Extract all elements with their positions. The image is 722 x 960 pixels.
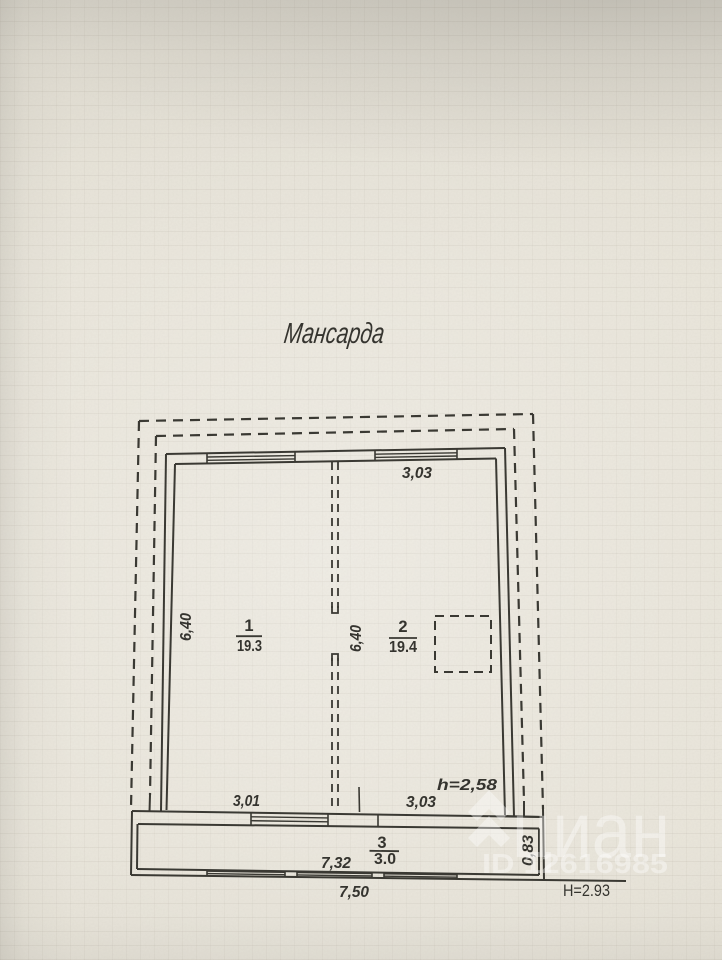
svg-text:H=2.93: H=2.93 [563,881,610,900]
svg-text:Мансарда: Мансарда [282,318,386,350]
svg-text:2: 2 [398,618,407,636]
svg-text:7,50: 7,50 [339,884,369,901]
svg-text:1: 1 [244,617,253,635]
svg-text:ID 12616985: ID 12616985 [482,848,668,879]
svg-text:19.4: 19.4 [389,639,417,656]
svg-text:6,40: 6,40 [178,613,195,641]
svg-text:3.0: 3.0 [374,851,396,868]
svg-text:3: 3 [377,834,386,852]
svg-text:7,32: 7,32 [321,855,351,872]
svg-text:6,40: 6,40 [348,625,365,652]
svg-text:19.3: 19.3 [237,638,262,655]
svg-text:3,01: 3,01 [233,793,260,810]
svg-text:3,03: 3,03 [406,794,436,811]
svg-text:3,03: 3,03 [402,465,432,482]
